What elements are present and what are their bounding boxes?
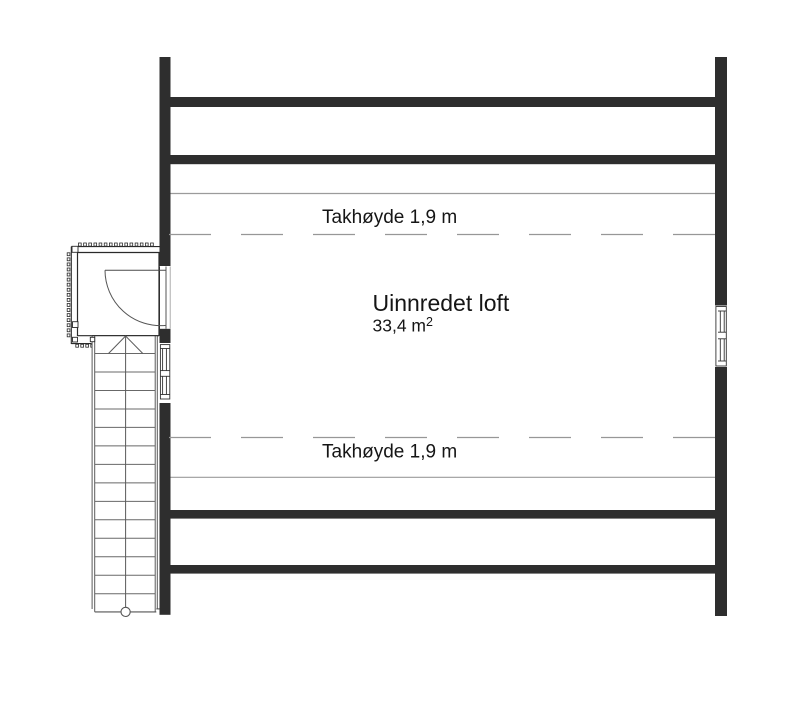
svg-text:33,4 m2: 33,4 m2 — [373, 315, 434, 336]
svg-text:Takhøyde 1,9 m: Takhøyde 1,9 m — [322, 442, 457, 463]
svg-text:Takhøyde 1,9 m: Takhøyde 1,9 m — [322, 207, 457, 228]
svg-text:Uinnredet loft: Uinnredet loft — [373, 290, 510, 316]
